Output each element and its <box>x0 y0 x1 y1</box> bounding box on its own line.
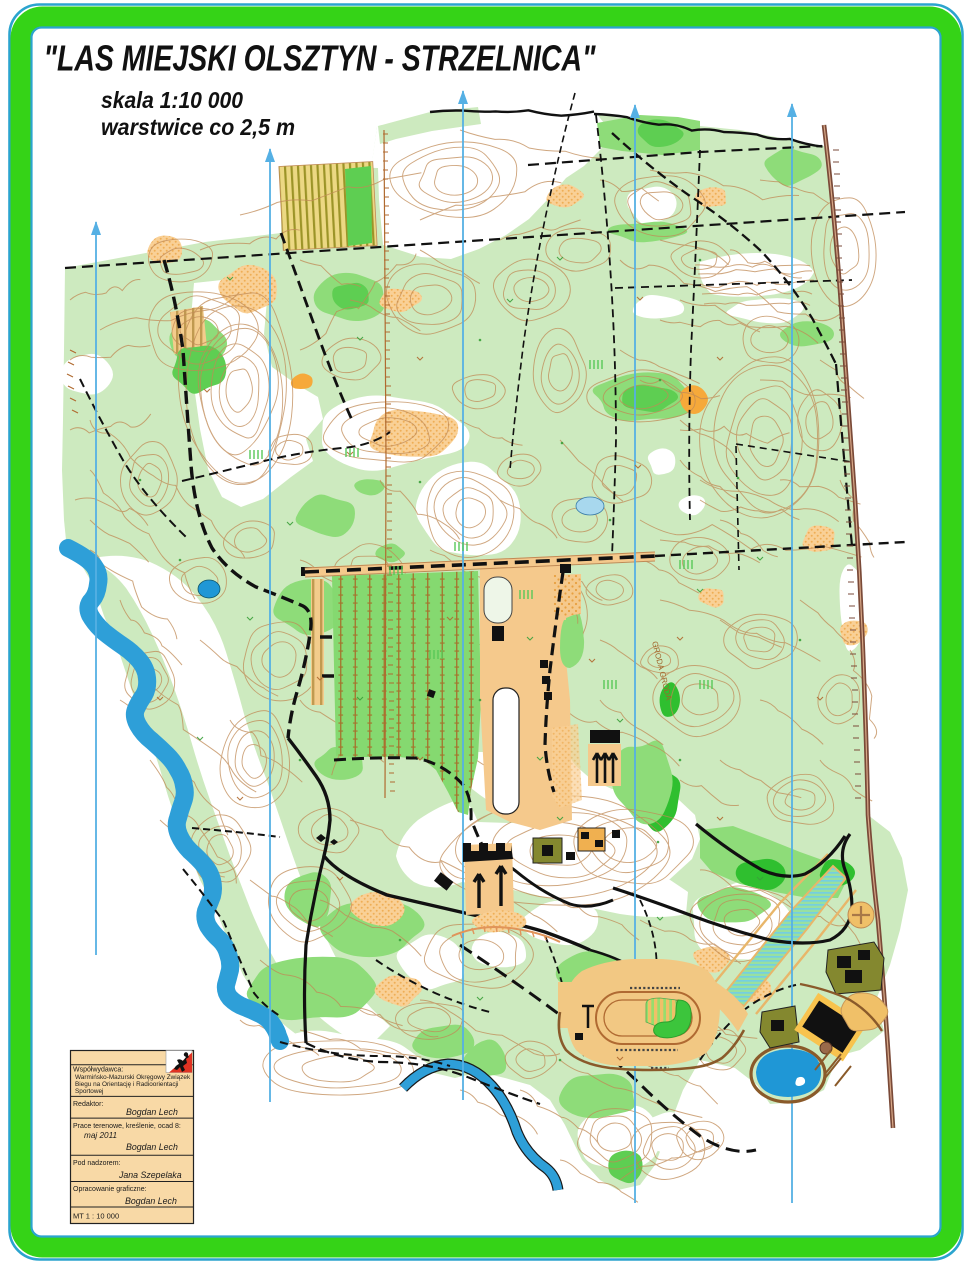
svg-text:Redaktor:: Redaktor: <box>73 1101 103 1108</box>
svg-text:Jana Szepelaka: Jana Szepelaka <box>118 1170 182 1180</box>
svg-text:skala 1:10 000: skala 1:10 000 <box>101 87 243 113</box>
svg-text:Warmińsko-Mazurski Okręgowy Zw: Warmińsko-Mazurski Okręgowy Związek <box>75 1074 191 1081</box>
svg-text:Pod nadzorem:: Pod nadzorem: <box>73 1160 121 1167</box>
svg-text:Współwydawca:: Współwydawca: <box>73 1067 123 1074</box>
svg-text:Sportowej: Sportowej <box>75 1088 103 1095</box>
svg-text:MT 1 : 10 000: MT 1 : 10 000 <box>73 1212 119 1221</box>
svg-text:warstwice co 2,5 m: warstwice co 2,5 m <box>101 114 295 140</box>
svg-text:Bogdan Lech: Bogdan Lech <box>126 1107 178 1117</box>
svg-text:Bogdan Lech: Bogdan Lech <box>125 1196 177 1206</box>
svg-text:Opracowanie graficzne:: Opracowanie graficzne: <box>73 1186 147 1193</box>
svg-text:maj 2011: maj 2011 <box>84 1131 117 1140</box>
svg-text:Bogdan Lech: Bogdan Lech <box>126 1142 178 1152</box>
svg-text:Biegu na Orientację i Radioori: Biegu na Orientację i Radioorientacji <box>75 1081 178 1088</box>
svg-text:"LAS MIEJSKI OLSZTYN - STRZELN: "LAS MIEJSKI OLSZTYN - STRZELNICA" <box>44 38 597 79</box>
svg-text:Prace terenowe, kreślenie, oca: Prace terenowe, kreślenie, ocad 8: <box>73 1123 181 1130</box>
